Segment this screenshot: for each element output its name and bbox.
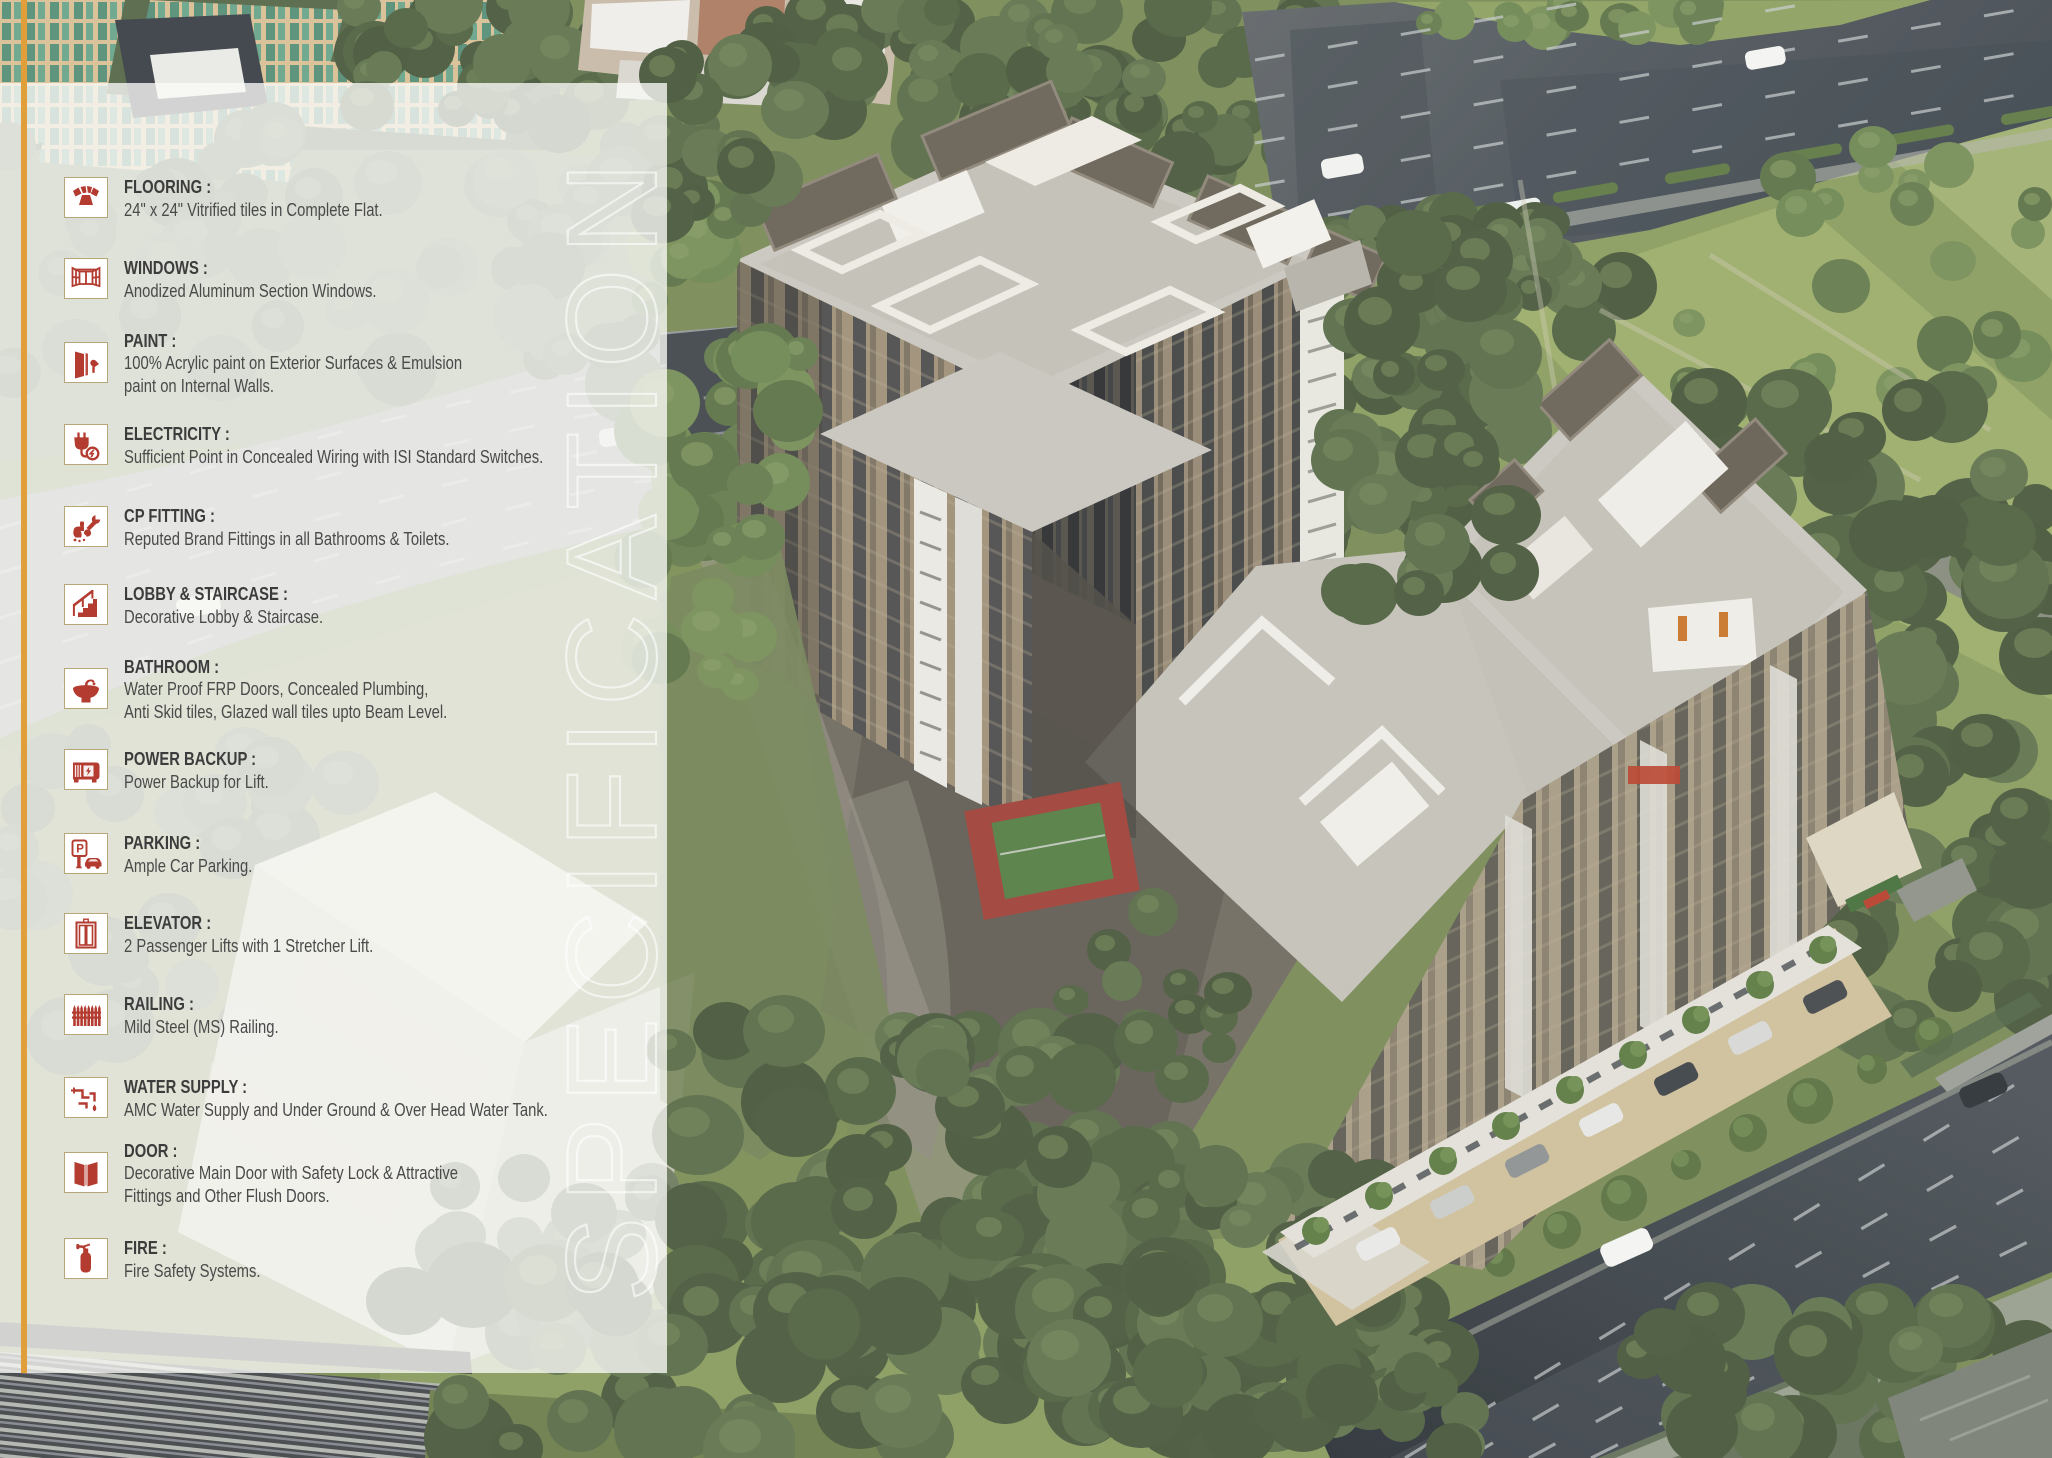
svg-text:P: P bbox=[76, 844, 84, 856]
